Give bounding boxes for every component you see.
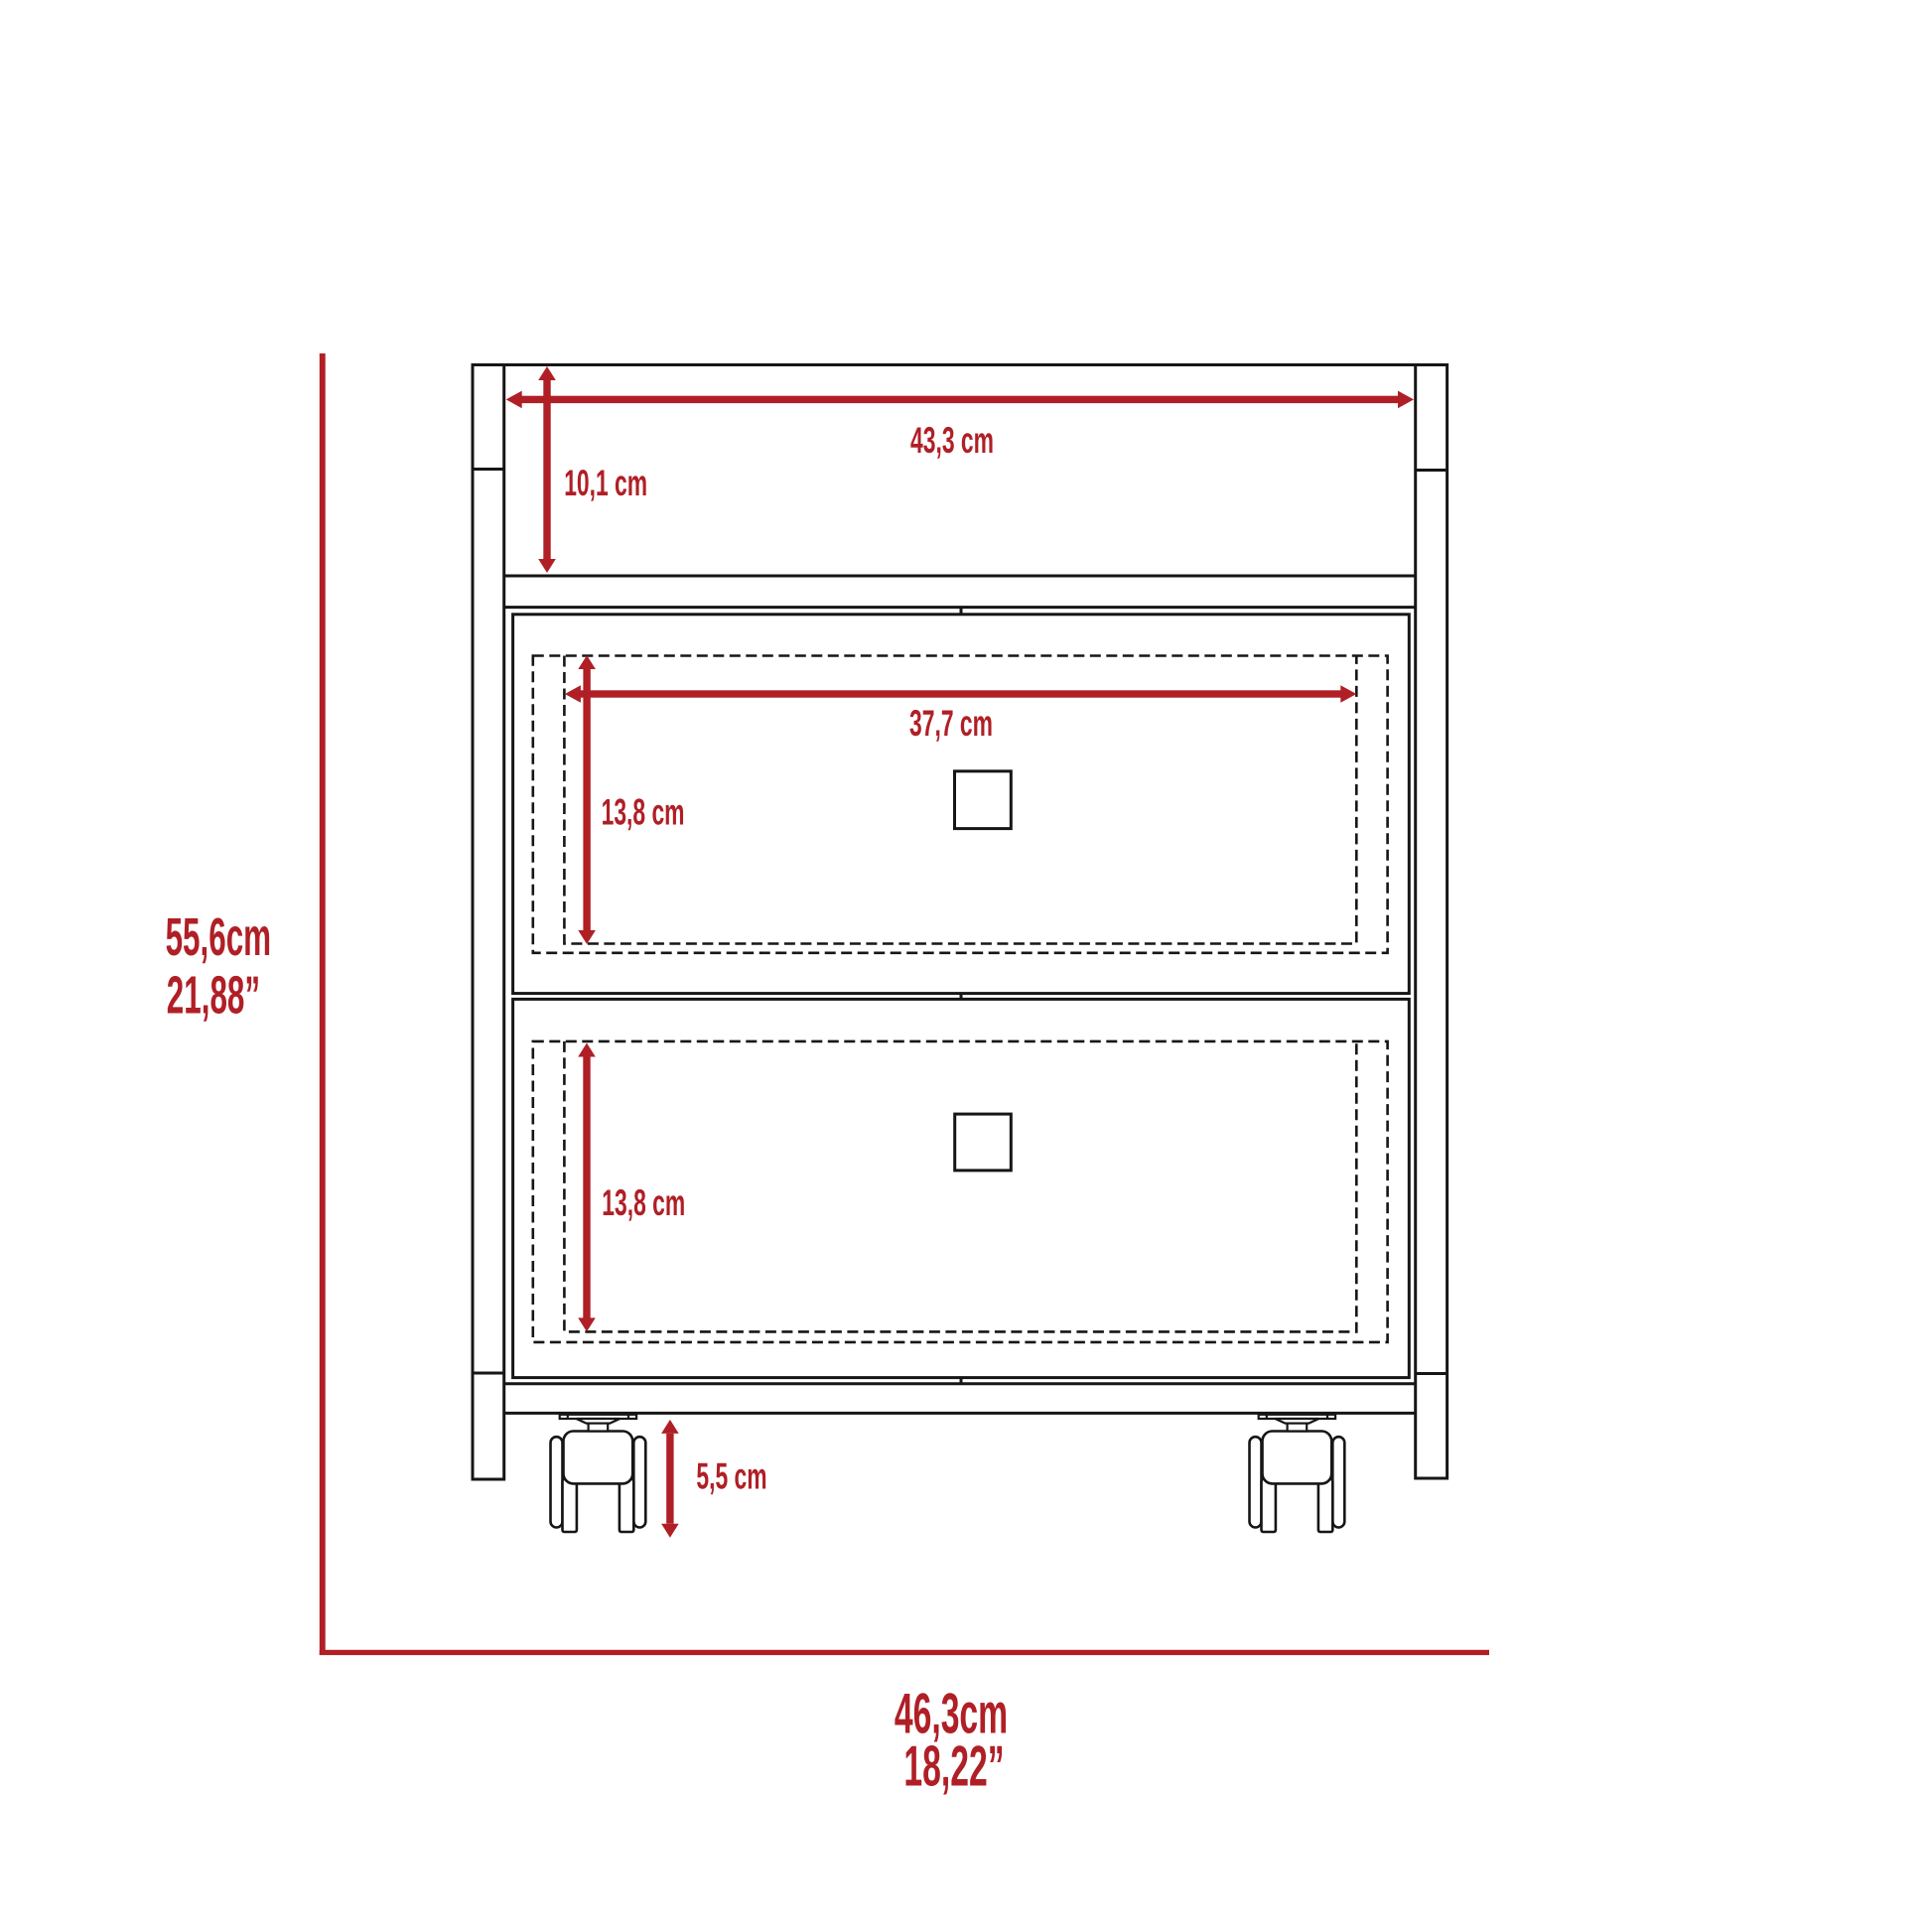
svg-text:43,3 cm: 43,3 cm <box>910 419 994 461</box>
svg-text:13,8 cm: 13,8 cm <box>602 1181 685 1223</box>
svg-text:5,5 cm: 5,5 cm <box>696 1455 766 1497</box>
svg-text:13,8 cm: 13,8 cm <box>602 790 685 832</box>
svg-text:21,88”: 21,88” <box>167 966 260 1026</box>
svg-text:55,6cm: 55,6cm <box>166 908 271 968</box>
svg-text:37,7 cm: 37,7 cm <box>909 702 993 744</box>
svg-text:18,22”: 18,22” <box>903 1733 1004 1798</box>
svg-text:10,1 cm: 10,1 cm <box>564 462 647 503</box>
